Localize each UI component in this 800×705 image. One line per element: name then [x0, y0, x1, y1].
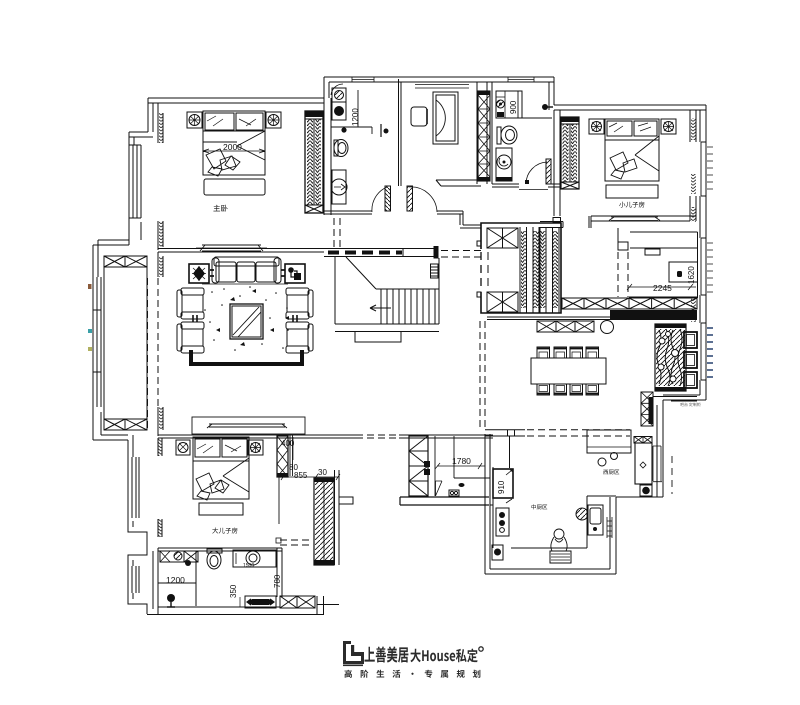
- svg-text:1200: 1200: [166, 575, 185, 585]
- svg-text:1500: 1500: [243, 563, 254, 569]
- svg-text:2000: 2000: [223, 142, 242, 152]
- svg-text:780: 780: [273, 574, 282, 588]
- svg-text:855: 855: [294, 471, 308, 480]
- svg-text:350: 350: [229, 584, 238, 598]
- svg-text:1200: 1200: [351, 108, 360, 126]
- svg-text:30: 30: [318, 468, 327, 477]
- svg-text:910: 910: [497, 480, 506, 494]
- svg-text:1620: 1620: [687, 266, 696, 284]
- svg-text:1780: 1780: [452, 456, 471, 466]
- svg-text:900: 900: [509, 100, 518, 114]
- svg-text:2245: 2245: [653, 283, 672, 293]
